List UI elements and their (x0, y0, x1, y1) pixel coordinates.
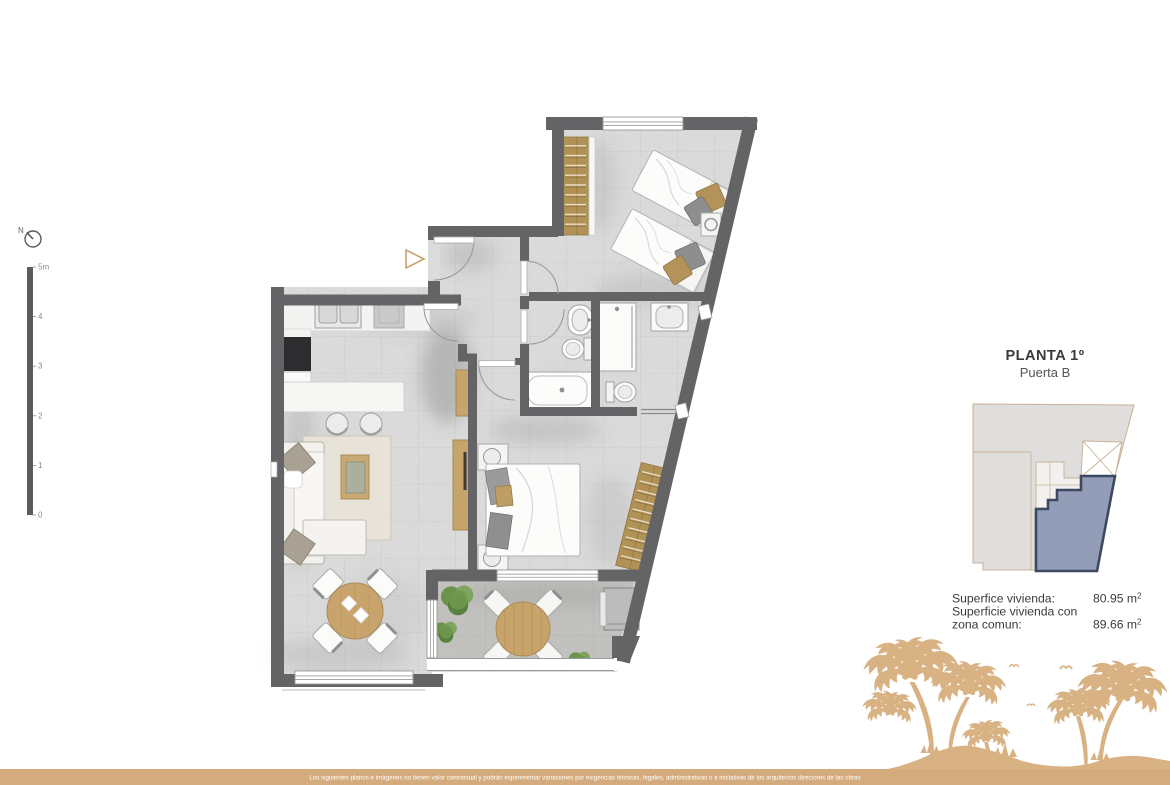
svg-text:4: 4 (38, 312, 43, 321)
svg-text:Superfice vivienda:: Superfice vivienda: (952, 592, 1055, 606)
svg-text:PLANTA 1º: PLANTA 1º (1005, 348, 1084, 364)
svg-text:5m: 5m (38, 263, 49, 272)
svg-text:Superficie vivienda con: Superficie vivienda con (952, 605, 1077, 619)
svg-text:89.66 m2: 89.66 m2 (1093, 618, 1142, 632)
svg-text:0: 0 (38, 511, 43, 520)
svg-text:2: 2 (38, 411, 43, 420)
svg-text:Los siguientes planos e imágen: Los siguientes planos e imágenes no tien… (309, 775, 860, 782)
svg-text:N: N (18, 226, 24, 235)
svg-text:3: 3 (38, 362, 43, 371)
svg-text:1: 1 (38, 461, 43, 470)
svg-text:80.95 m2: 80.95 m2 (1093, 592, 1142, 606)
svg-text:Puerta B: Puerta B (1020, 365, 1071, 380)
svg-text:zona comun:: zona comun: (952, 618, 1022, 632)
